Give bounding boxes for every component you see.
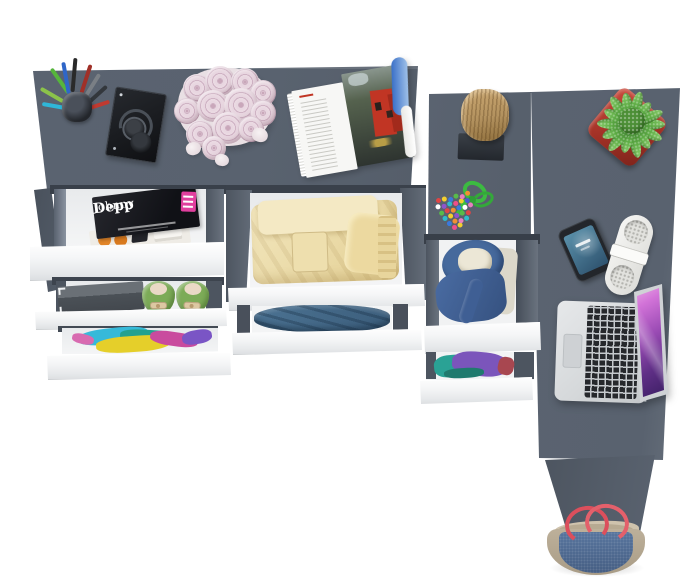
logo-dot: [113, 147, 116, 150]
insole: [150, 283, 167, 295]
towel-fold: [291, 231, 328, 272]
cord-knot: [468, 196, 476, 204]
drawer-rail: [393, 304, 408, 332]
folded-towels: [250, 196, 402, 288]
speaker-clasp: [609, 243, 649, 267]
photo-lights: [363, 136, 398, 150]
folded-jeans: [254, 305, 390, 332]
desk-seam: [530, 93, 532, 239]
drawer-front: [423, 321, 543, 355]
cabinet-wall: [400, 188, 426, 300]
wooden-stool: [461, 89, 509, 141]
shoe-bow: [183, 302, 200, 310]
laptop: [552, 280, 670, 406]
heading-mark: [299, 94, 313, 98]
drawer-front: [30, 242, 225, 282]
window: [375, 102, 382, 111]
potted-plant: [593, 82, 671, 164]
denim-jacket: [436, 240, 520, 326]
price-badge: [181, 191, 197, 212]
drawer-front: [419, 376, 535, 406]
text-column: [300, 97, 338, 170]
pen-cup: [62, 92, 92, 122]
cabinet-wall: [514, 352, 534, 379]
tote-bag: [545, 515, 649, 580]
laptop-trackpad: [562, 334, 582, 369]
box-corner: [58, 287, 65, 294]
open-magazine: [290, 62, 428, 186]
logo-dot: [119, 93, 122, 96]
speaker-grille: [621, 217, 651, 247]
green-cord: [454, 198, 468, 218]
insole: [184, 283, 202, 296]
cabinet-wall: [226, 190, 252, 302]
product-photo: Johnny Depp: [0, 0, 700, 580]
drawer-front: [46, 351, 232, 381]
plant-center: [619, 108, 645, 134]
photo-sky: [347, 72, 369, 87]
shoe-bow: [150, 302, 167, 309]
bead-cluster: [435, 197, 441, 203]
laptop-keyboard: [584, 305, 639, 399]
storage-box: [57, 281, 145, 315]
drawer-rail: [237, 305, 250, 333]
magazines-drawer: Johnny Depp: [54, 189, 224, 247]
window: [386, 110, 393, 118]
headphones-tray: [105, 86, 167, 163]
candy-beads: [432, 180, 504, 246]
towel-stack-edge: [378, 216, 396, 278]
